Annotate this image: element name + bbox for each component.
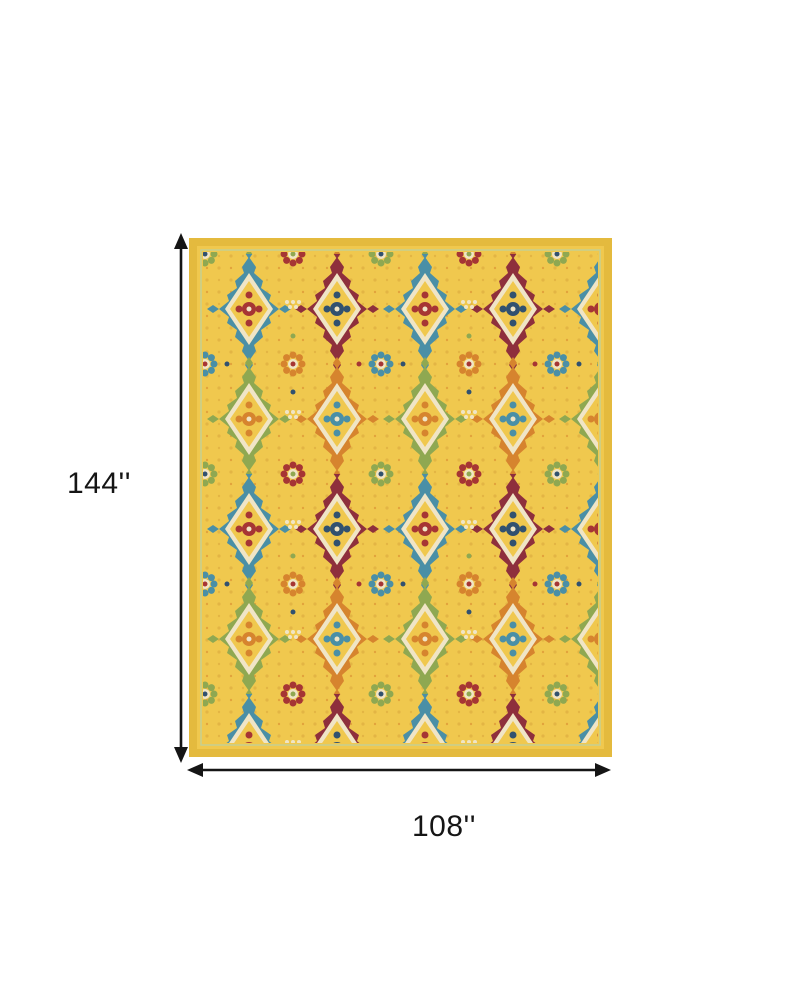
rug-pattern-layer [203, 252, 598, 743]
arrow-head-left-icon [187, 763, 203, 777]
arrow-head-down-icon [174, 747, 188, 763]
width-dimension-arrow [187, 760, 611, 780]
width-dimension-label: 108'' [377, 812, 511, 842]
height-dimension-label: 144'' [36, 469, 131, 499]
arrow-head-right-icon [595, 763, 611, 777]
rug-image [189, 238, 612, 757]
product-dimension-figure: 144'' 108'' [0, 0, 797, 1000]
arrow-head-up-icon [174, 233, 188, 249]
height-dimension-arrow [171, 233, 191, 763]
